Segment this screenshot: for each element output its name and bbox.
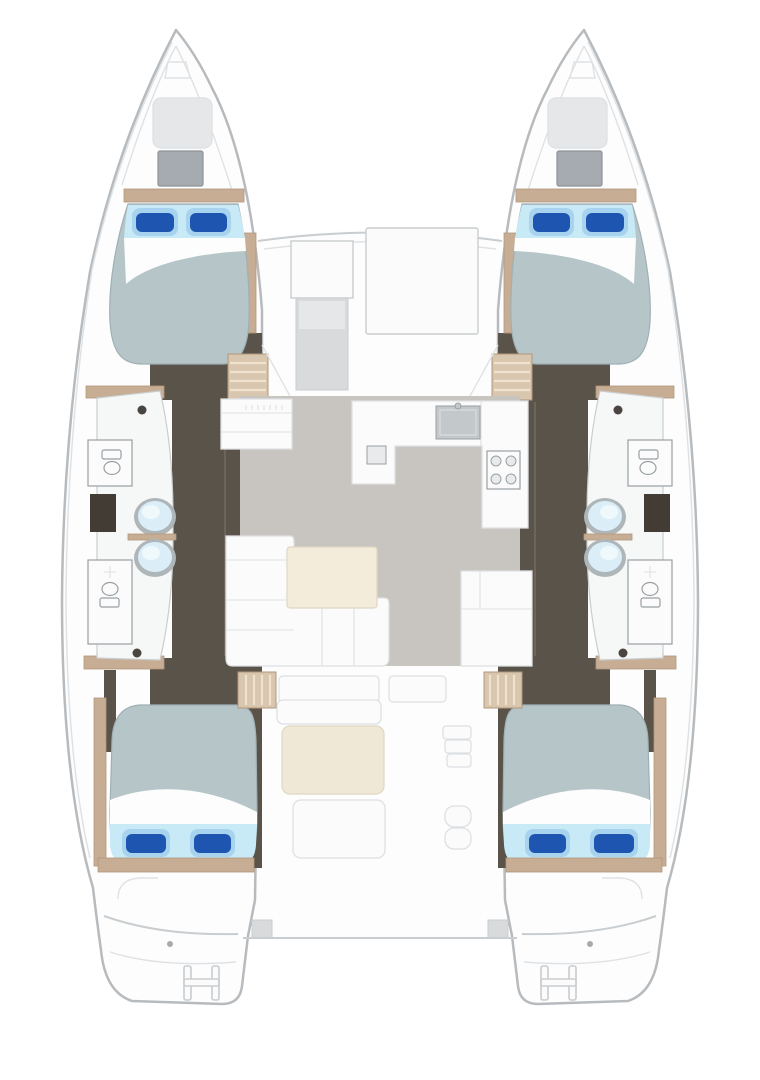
catamaran-floor-plan <box>0 0 760 1080</box>
port-forward-cabin <box>110 189 256 364</box>
port-basin-aft <box>134 539 176 577</box>
nav-cabinet <box>221 399 292 449</box>
cockpit-back-bench-left <box>279 676 379 702</box>
port-anchor-locker <box>158 151 203 186</box>
saloon-aft-cabinet <box>461 571 532 666</box>
port-bath-door-pivot-aft <box>133 649 142 658</box>
cockpit-back-bench-right <box>389 676 446 702</box>
cockpit-table <box>282 726 384 794</box>
port-aft-cabin <box>94 698 257 872</box>
galley-stove <box>487 451 520 489</box>
port-bathrooms <box>84 386 176 669</box>
galley-faucet <box>455 403 461 409</box>
saloon-table <box>287 547 377 608</box>
port-aft-side-wall <box>94 698 106 866</box>
port-forward-steps <box>228 354 268 400</box>
port-bow-locker-panel <box>153 98 212 148</box>
port-shower-block <box>90 494 116 532</box>
port-aft-steps <box>238 672 276 708</box>
port-aft-foot-wall <box>98 858 254 872</box>
galley-prep-sink <box>367 446 386 464</box>
port-basin-fwd <box>134 498 176 536</box>
foredeck-hatch-top <box>299 301 345 329</box>
coachroof-panel <box>366 228 478 334</box>
galley-sink <box>436 406 480 439</box>
catamaran-floor-plan-page <box>0 0 760 1080</box>
port-bath-door-pivot-fwd <box>138 406 147 415</box>
port-basin-divider <box>128 534 176 540</box>
foredeck-door <box>291 241 353 298</box>
saloon <box>221 396 532 666</box>
port-forward-headboard <box>124 189 244 202</box>
cockpit-bench <box>277 700 381 724</box>
cockpit-side-steps <box>443 726 471 767</box>
cockpit-aft-bench <box>293 800 385 858</box>
